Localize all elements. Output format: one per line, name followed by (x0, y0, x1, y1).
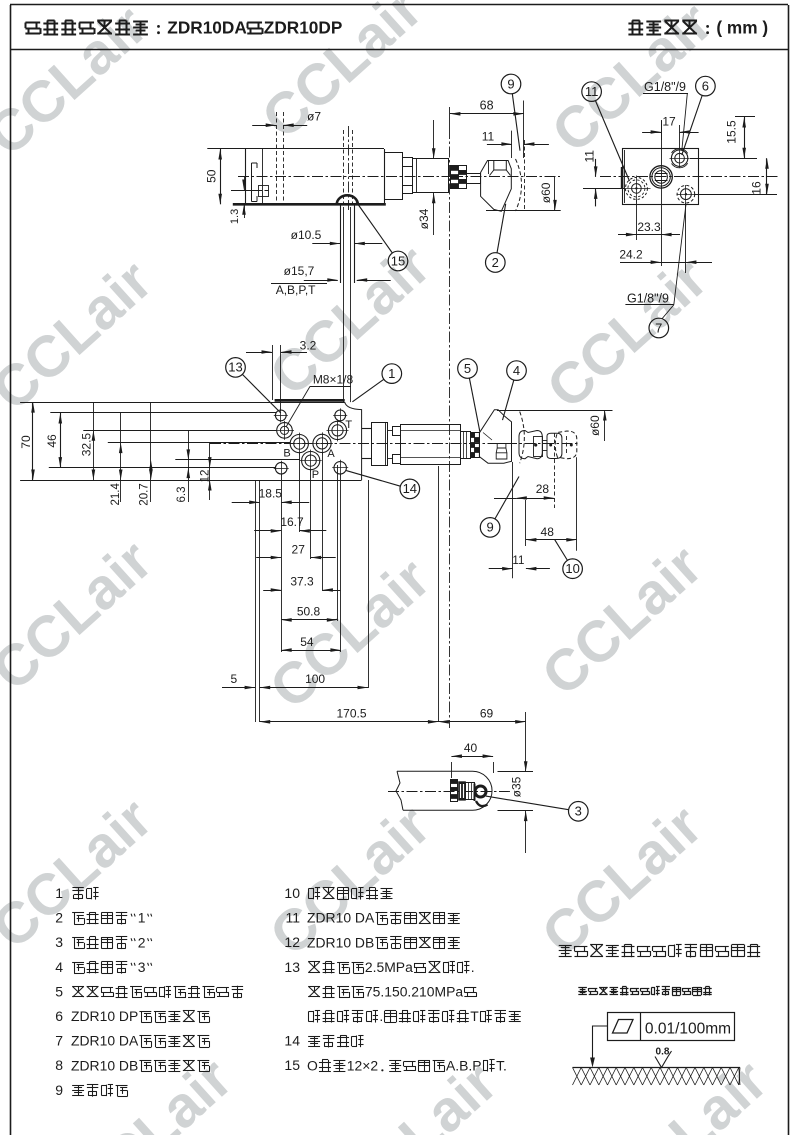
svg-text:5: 5 (55, 983, 63, 999)
svg-text:6.3: 6.3 (176, 487, 188, 503)
svg-text:0.8: 0.8 (656, 1047, 670, 1058)
svg-text:T: T (345, 419, 352, 431)
svg-text:24.2: 24.2 (619, 247, 643, 261)
svg-text:11: 11 (482, 130, 495, 144)
svg-text:ø60: ø60 (588, 415, 602, 436)
svg-text:A.B.P: A.B.P (446, 1057, 482, 1073)
svg-text:7: 7 (55, 1033, 63, 1049)
svg-text:10: 10 (284, 885, 300, 901)
svg-text:50.8: 50.8 (297, 605, 321, 619)
svg-text:9: 9 (486, 520, 493, 535)
svg-text:.: . (379, 1008, 383, 1024)
svg-text:8: 8 (55, 1057, 63, 1073)
svg-text:12: 12 (200, 470, 212, 483)
svg-text:2: 2 (55, 910, 63, 926)
svg-text:0.01/100mm: 0.01/100mm (645, 1021, 731, 1038)
svg-text:ZDR10 DP: ZDR10 DP (71, 1008, 138, 1024)
svg-text:40: 40 (464, 741, 478, 755)
svg-text:7: 7 (655, 320, 662, 335)
svg-text:9: 9 (55, 1082, 63, 1098)
svg-text:5: 5 (230, 672, 237, 686)
svg-text:14: 14 (284, 1033, 300, 1049)
svg-text:12×2: 12×2 (347, 1057, 379, 1073)
svg-text:1: 1 (138, 910, 146, 926)
svg-text:ZDR10DA: ZDR10DA (167, 17, 246, 37)
svg-text:15: 15 (284, 1057, 300, 1073)
svg-text:ø60: ø60 (539, 182, 553, 203)
svg-text:M8×1/8: M8×1/8 (313, 373, 354, 387)
svg-text:15.5: 15.5 (725, 120, 739, 144)
svg-text:11: 11 (285, 910, 300, 926)
svg-text:T.: T. (496, 1057, 507, 1073)
svg-text:20.7: 20.7 (139, 483, 151, 505)
svg-text:9: 9 (507, 76, 514, 91)
svg-text:ZDR10 DB: ZDR10 DB (307, 934, 374, 950)
svg-text:11: 11 (583, 150, 597, 163)
svg-text:O: O (307, 1057, 318, 1073)
svg-text:3: 3 (575, 804, 582, 819)
svg-text:100: 100 (305, 672, 325, 686)
svg-text:15: 15 (391, 253, 405, 268)
svg-text:11: 11 (512, 555, 524, 567)
svg-text:13: 13 (228, 360, 242, 375)
svg-text:21.4: 21.4 (110, 483, 122, 506)
svg-text:13: 13 (284, 959, 300, 975)
svg-text:ø34: ø34 (417, 208, 431, 229)
svg-text:10: 10 (565, 561, 579, 576)
svg-text:6: 6 (55, 1008, 63, 1024)
svg-text:2: 2 (138, 934, 146, 950)
svg-text:37.3: 37.3 (290, 575, 314, 589)
svg-text:.: . (471, 959, 475, 975)
svg-text:170.5: 170.5 (336, 707, 366, 721)
svg-text:16.7: 16.7 (280, 515, 304, 529)
svg-text:ZDR10 DA: ZDR10 DA (307, 910, 375, 926)
svg-text:50: 50 (204, 169, 218, 183)
svg-text:3: 3 (138, 959, 146, 975)
svg-text:70: 70 (19, 435, 33, 449)
svg-text:14: 14 (403, 481, 417, 496)
svg-text:68: 68 (480, 99, 494, 113)
svg-text:27: 27 (292, 543, 306, 557)
svg-text:ø15,7: ø15,7 (284, 264, 315, 278)
svg-text:69: 69 (480, 707, 494, 721)
svg-text:1: 1 (55, 885, 63, 901)
svg-text:11: 11 (585, 84, 599, 99)
svg-text:ZDR10DP: ZDR10DP (264, 17, 343, 37)
svg-text:G1/8"/9: G1/8"/9 (644, 80, 686, 94)
svg-text:75.150.210MPa: 75.150.210MPa (365, 984, 463, 1000)
svg-text:12: 12 (284, 934, 300, 950)
svg-text:18.5: 18.5 (259, 487, 283, 501)
svg-text:ø7: ø7 (307, 110, 321, 124)
svg-text:A: A (327, 448, 335, 460)
svg-text:ø35: ø35 (509, 776, 523, 797)
svg-text:28: 28 (536, 482, 550, 496)
svg-text:1.3: 1.3 (229, 209, 241, 224)
svg-text:P: P (312, 469, 319, 481)
svg-text:48: 48 (541, 525, 555, 539)
svg-text:G1/8"/9: G1/8"/9 (627, 291, 669, 305)
svg-text:ZDR10 DB: ZDR10 DB (71, 1057, 138, 1073)
svg-text:46: 46 (45, 434, 59, 448)
svg-text:ZDR10 DA: ZDR10 DA (71, 1033, 139, 1049)
svg-text:16: 16 (750, 181, 764, 195)
svg-text:B: B (283, 448, 290, 460)
svg-text:4: 4 (55, 959, 63, 975)
svg-text:17: 17 (662, 115, 676, 129)
svg-text:T: T (470, 1008, 479, 1024)
svg-text:ø10.5: ø10.5 (291, 228, 322, 242)
svg-text:6: 6 (702, 78, 709, 93)
svg-text:2.5MPa: 2.5MPa (365, 959, 413, 975)
svg-text:2: 2 (492, 255, 499, 270)
svg-text:3: 3 (55, 934, 63, 950)
svg-text:32.5: 32.5 (80, 433, 94, 457)
svg-text:3.2: 3.2 (300, 339, 317, 353)
svg-text:23.3: 23.3 (637, 220, 661, 234)
svg-text:A,B,P,T: A,B,P,T (276, 283, 316, 297)
svg-text:4: 4 (513, 363, 520, 378)
svg-text:( mm ): ( mm ) (716, 17, 768, 37)
svg-text:5: 5 (464, 361, 471, 376)
svg-text:54: 54 (300, 635, 314, 649)
svg-text:1: 1 (388, 366, 395, 381)
